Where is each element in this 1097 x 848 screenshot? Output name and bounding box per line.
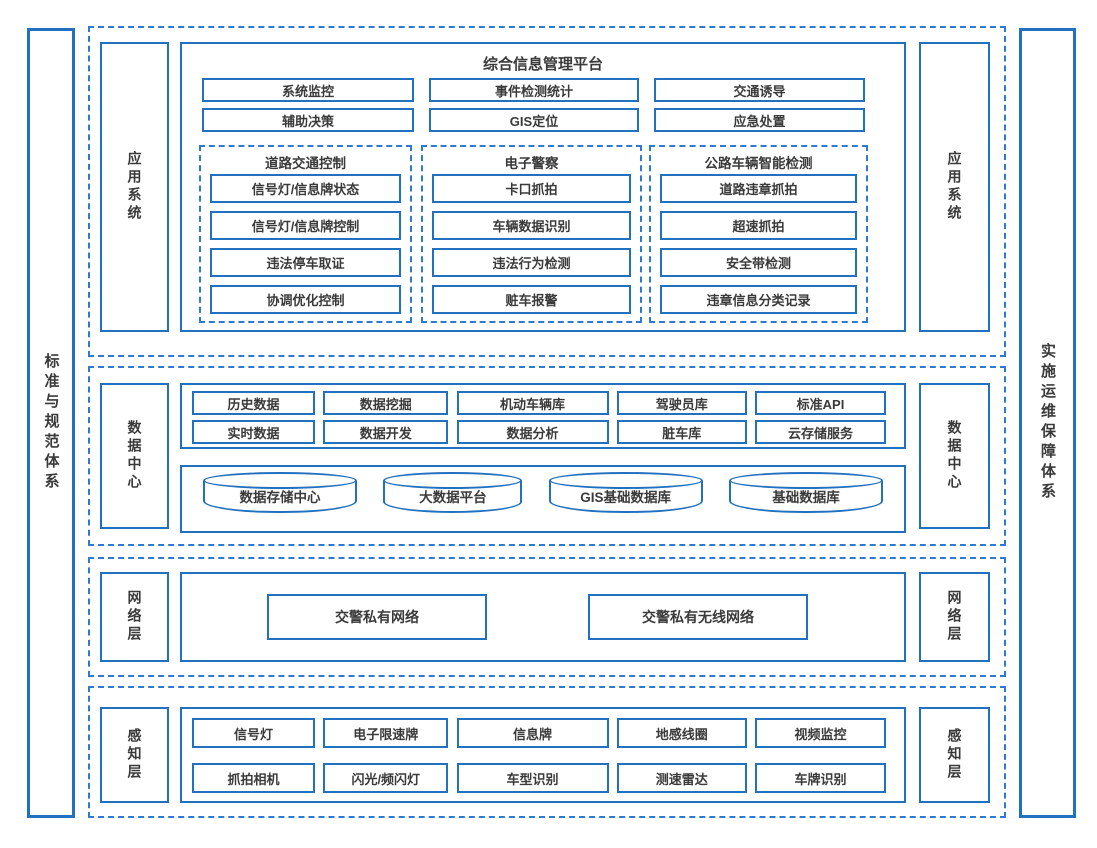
subsystem-group-title: 电子警察 [423,152,640,172]
subsystem-item: 超速抓拍 [660,211,857,240]
application-layer-label-text: 应用系统 [128,151,142,223]
device: 视频监控 [755,718,886,748]
database-label: GIS基础数据库 [580,486,671,506]
network-private-wired: 交警私有网络 [267,594,487,640]
devices-box: 信号灯 电子限速牌 信息牌 地感线圈 视频监控 抓拍相机 闪光/频闪灯 车型识别… [180,707,906,803]
subsystem-item-list: 卡口抓拍 车辆数据识别 违法行为检测 赃车报警 [432,174,631,322]
platform-title: 综合信息管理平台 [182,53,904,74]
application-layer-label-left: 应用系统 [100,42,169,332]
database-cylinder-storage-center: 数据存储中心 [203,481,357,513]
subsystem-item: 卡口抓拍 [432,174,631,203]
perception-layer: 感知层 信号灯 电子限速牌 信息牌 地感线圈 视频监控 抓拍相机 闪光/频闪灯 … [88,686,1006,818]
database-cylinder-gis-base: GIS基础数据库 [549,481,703,513]
subsystem-group-road-traffic-control: 道路交通控制 信号灯/信息牌状态 信号灯/信息牌控制 违法停车取证 协调优化控制 [199,145,412,323]
perception-layer-label-text: 感知层 [948,728,962,782]
subsystem-item: 赃车报警 [432,285,631,314]
device-row: 抓拍相机 闪光/频闪灯 车型识别 测速雷达 车牌识别 [182,763,904,793]
database-cylinder-bigdata-platform: 大数据平台 [383,481,522,513]
database-row: 数据存储中心 大数据平台 GIS基础数据库 基础数据库 [182,467,904,531]
data-service: 数据分析 [457,420,609,444]
data-services-row: 历史数据 数据挖掘 机动车辆库 驾驶员库 标准API [182,391,904,415]
integrated-info-platform-box: 综合信息管理平台 系统监控 事件检测统计 交通诱导 辅助决策 GIS定位 应急处… [180,42,906,332]
perception-layer-label-text: 感知层 [128,728,142,782]
network-layer-label-text: 网络层 [128,590,142,644]
subsystem-group-electronic-police: 电子警察 卡口抓拍 车辆数据识别 违法行为检测 赃车报警 [421,145,642,323]
platform-function-system-monitoring: 系统监控 [202,78,414,102]
data-service: 实时数据 [192,420,315,444]
subsystem-item: 协调优化控制 [210,285,401,314]
network-private-wireless: 交警私有无线网络 [588,594,808,640]
data-service: 脏车库 [617,420,747,444]
subsystem-item: 道路违章抓拍 [660,174,857,203]
perception-layer-label-right: 感知层 [919,707,990,803]
data-center-label-text: 数据中心 [128,420,142,492]
subsystem-item-list: 道路违章抓拍 超速抓拍 安全带检测 违章信息分类记录 [660,174,857,322]
platform-function-event-detection-stats: 事件检测统计 [429,78,639,102]
device: 电子限速牌 [323,718,448,748]
application-layer-label-text: 应用系统 [948,151,962,223]
data-service: 驾驶员库 [617,391,747,415]
subsystem-item: 车辆数据识别 [432,211,631,240]
data-center-label-left: 数据中心 [100,383,169,529]
subsystem-item: 违章信息分类记录 [660,285,857,314]
network-layer-label-text: 网络层 [948,590,962,644]
implementation-ops-guarantee-bar: 实施运维保障体系 [1019,28,1076,818]
network-row: 交警私有网络 交警私有无线网络 [182,574,904,660]
standards-spec-system-label: 标准与规范体系 [44,353,59,493]
subsystem-item: 违法停车取证 [210,248,401,277]
data-services-box: 历史数据 数据挖掘 机动车辆库 驾驶员库 标准API 实时数据 数据开发 数据分… [180,383,906,449]
data-center-label-right: 数据中心 [919,383,990,529]
subsystem-group-highway-vehicle-smart-detection: 公路车辆智能检测 道路违章抓拍 超速抓拍 安全带检测 违章信息分类记录 [649,145,868,323]
subsystem-group-title: 公路车辆智能检测 [651,152,866,172]
device: 信号灯 [192,718,315,748]
data-service: 数据开发 [323,420,448,444]
data-service: 机动车辆库 [457,391,609,415]
device-row: 信号灯 电子限速牌 信息牌 地感线圈 视频监控 [182,718,904,748]
network-layer: 网络层 交警私有网络 交警私有无线网络 网络层 [88,557,1006,677]
subsystem-item: 违法行为检测 [432,248,631,277]
subsystem-item: 安全带检测 [660,248,857,277]
subsystem-item: 信号灯/信息牌控制 [210,211,401,240]
device: 车牌识别 [755,763,886,793]
data-service: 标准API [755,391,886,415]
network-layer-label-right: 网络层 [919,572,990,662]
perception-layer-label-left: 感知层 [100,707,169,803]
data-service: 云存储服务 [755,420,886,444]
traffic-system-architecture-diagram: 标准与规范体系 实施运维保障体系 应用系统 综合信息管理平台 系统监控 事件检测… [0,0,1097,848]
implementation-ops-guarantee-label: 实施运维保障体系 [1040,343,1055,503]
subsystem-group-title: 道路交通控制 [201,152,410,172]
subsystem-item-list: 信号灯/信息牌状态 信号灯/信息牌控制 违法停车取证 协调优化控制 [210,174,401,322]
platform-function-decision-support: 辅助决策 [202,108,414,132]
application-layer-label-right: 应用系统 [919,42,990,332]
subsystem-item: 信号灯/信息牌状态 [210,174,401,203]
platform-function-gis-positioning: GIS定位 [429,108,639,132]
device: 测速雷达 [617,763,747,793]
network-layer-label-left: 网络层 [100,572,169,662]
data-service: 历史数据 [192,391,315,415]
platform-function-traffic-guidance: 交通诱导 [654,78,865,102]
data-center-label-text: 数据中心 [948,420,962,492]
databases-box: 数据存储中心 大数据平台 GIS基础数据库 基础数据库 [180,465,906,533]
device: 地感线圈 [617,718,747,748]
database-label: 数据存储中心 [240,486,321,506]
standards-spec-system-bar: 标准与规范体系 [27,28,75,818]
device: 车型识别 [457,763,609,793]
application-system-layer: 应用系统 综合信息管理平台 系统监控 事件检测统计 交通诱导 辅助决策 GIS定… [88,26,1006,357]
platform-function-emergency-response: 应急处置 [654,108,865,132]
data-center-layer: 数据中心 历史数据 数据挖掘 机动车辆库 驾驶员库 标准API 实时数据 数据开… [88,366,1006,546]
data-services-row: 实时数据 数据开发 数据分析 脏车库 云存储服务 [182,420,904,444]
network-content-box: 交警私有网络 交警私有无线网络 [180,572,906,662]
device: 闪光/频闪灯 [323,763,448,793]
data-service: 数据挖掘 [323,391,448,415]
device: 信息牌 [457,718,609,748]
database-label: 基础数据库 [772,486,840,506]
database-cylinder-base: 基础数据库 [729,481,883,513]
device: 抓拍相机 [192,763,315,793]
database-label: 大数据平台 [419,486,487,506]
